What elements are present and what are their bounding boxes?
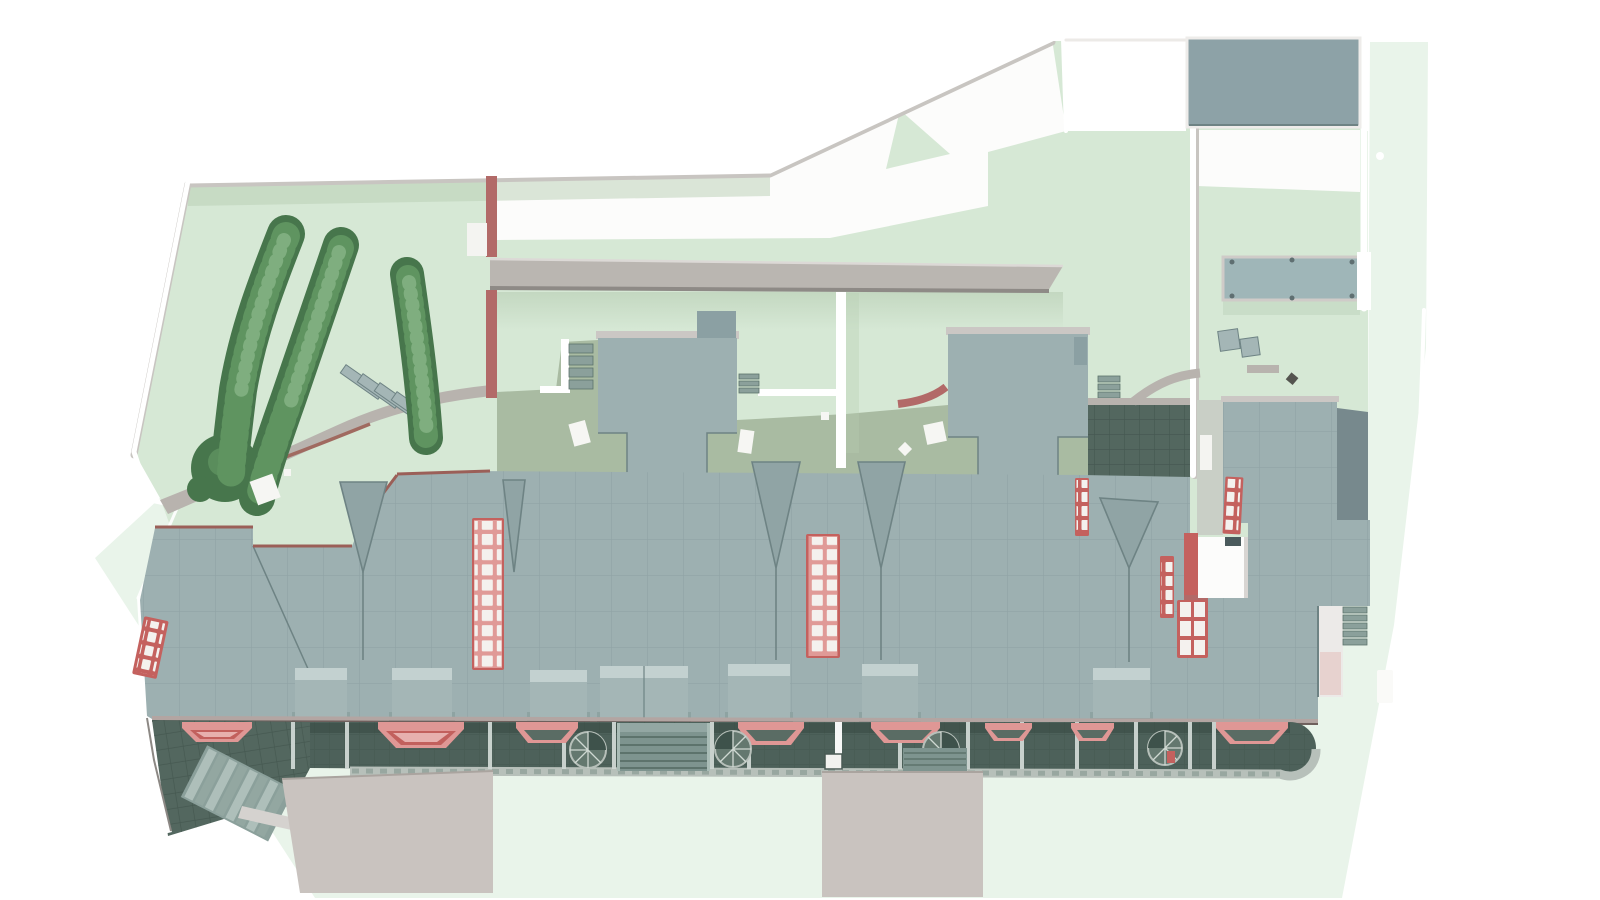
front-stairs-wide: [617, 723, 710, 771]
northeast-deck: [1223, 252, 1371, 310]
concrete-pad-west: [282, 771, 493, 893]
elevated-beam: [490, 259, 1063, 291]
lawn-paper-east: [1377, 670, 1393, 703]
east-steps: [1343, 607, 1367, 645]
white-dot: [1376, 152, 1384, 160]
deck-shadow: [1223, 301, 1360, 315]
alley: [1197, 400, 1223, 535]
walkway-door: [825, 754, 842, 769]
lawn-paper-small: [284, 469, 291, 476]
skylight-small-b: [1222, 477, 1243, 535]
northeast-roof: [1187, 38, 1360, 127]
red-wall-upper: [486, 176, 497, 257]
front-stairs-small: [903, 748, 967, 771]
east-wing-shadow-face: [1337, 408, 1368, 523]
pavilion-1-skybox: [697, 311, 736, 338]
concrete-pad-center: [822, 772, 983, 897]
white-panel: [467, 223, 487, 256]
spiral-stair-2: [715, 731, 751, 767]
site-plan-render: [0, 0, 1600, 900]
small-red-door: [1167, 751, 1175, 763]
east-ramp: [1318, 606, 1343, 697]
skylight-small-c: [1160, 556, 1174, 618]
beam-shadow: [490, 292, 1063, 330]
stair-opening: [1184, 533, 1248, 607]
spiral-stair-1: [570, 732, 606, 768]
render-canvas: [0, 0, 1600, 900]
canopy-7: [1071, 723, 1114, 741]
spiral-stair-4: [1148, 731, 1182, 765]
skylight-center-double: [806, 534, 840, 658]
east-patio: [1088, 398, 1190, 478]
white-court-northeast: [1197, 130, 1360, 192]
red-wall-lower: [486, 290, 497, 398]
skylight-small-a: [1075, 478, 1089, 536]
pavilion-2-skybox: [1074, 337, 1087, 365]
skylight-k4: [1177, 600, 1208, 658]
bench-bar: [1247, 365, 1279, 373]
skylight-left-double: [472, 518, 504, 670]
